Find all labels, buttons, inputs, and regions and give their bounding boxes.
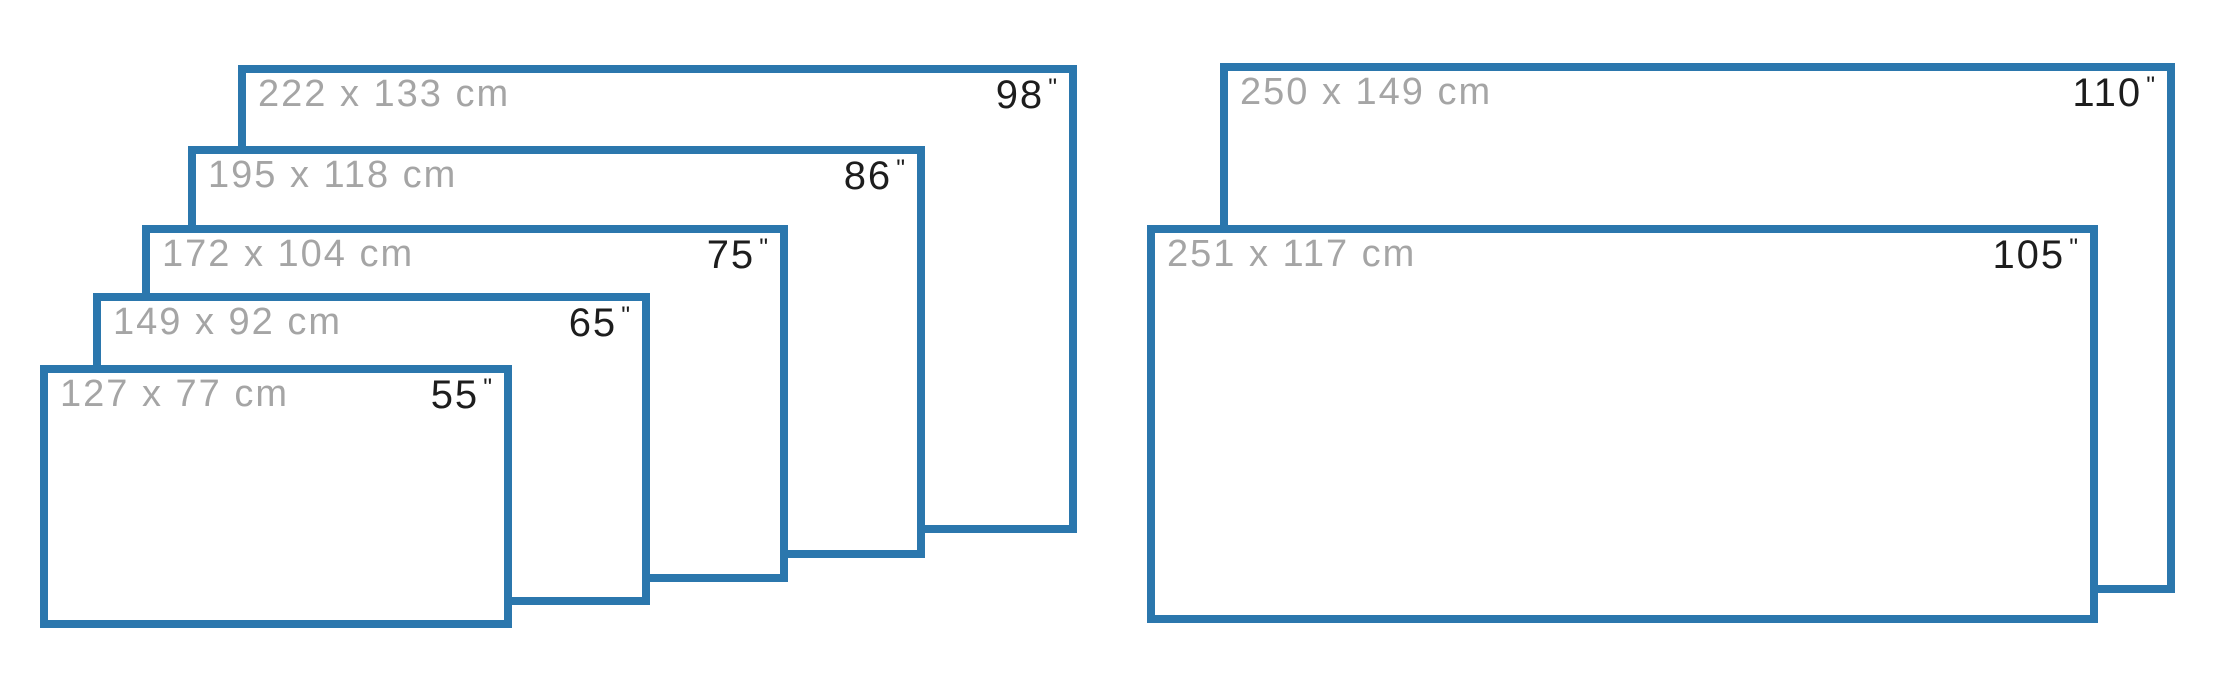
- inch-size-label: 105": [1992, 235, 2080, 275]
- inch-size-label: 98": [996, 75, 1059, 115]
- inch-size-label: 110": [2072, 73, 2157, 113]
- screen-rect-110in: 250 x 149 cm 110": [1220, 63, 2175, 593]
- inch-value: 98: [996, 73, 1045, 117]
- inch-value: 65: [569, 301, 618, 345]
- inch-value: 110: [2072, 71, 2142, 115]
- inch-size-label: 86": [844, 156, 907, 196]
- inch-size-label: 65": [569, 303, 632, 343]
- inch-size-label: 75": [707, 235, 770, 275]
- screen-rect-75in: 172 x 104 cm 75": [142, 225, 788, 582]
- inch-mark: ": [1048, 75, 1059, 102]
- cm-dimensions-label: 127 x 77 cm: [60, 375, 289, 413]
- cm-dimensions-label: 222 x 133 cm: [258, 75, 510, 113]
- inch-size-label: 55": [431, 375, 494, 415]
- cm-dimensions-label: 251 x 117 cm: [1167, 235, 1416, 273]
- inch-value: 75: [707, 233, 756, 277]
- screen-rect-86in: 195 x 118 cm 86": [188, 146, 925, 558]
- inch-value: 86: [844, 154, 893, 198]
- inch-mark: ": [2146, 73, 2157, 100]
- screen-rect-55in: 127 x 77 cm 55": [40, 365, 512, 628]
- inch-mark: ": [896, 156, 907, 183]
- cm-dimensions-label: 149 x 92 cm: [113, 303, 342, 341]
- screen-rect-98in: 222 x 133 cm 98": [238, 65, 1077, 533]
- screen-group-left: 222 x 133 cm 98" 195 x 118 cm 86" 172 x …: [0, 0, 2220, 694]
- inch-mark: ": [2069, 235, 2080, 262]
- inch-value: 55: [431, 373, 480, 417]
- cm-dimensions-label: 195 x 118 cm: [208, 156, 457, 194]
- screen-rect-105in: 251 x 117 cm 105": [1147, 225, 2098, 623]
- screen-rect-65in: 149 x 92 cm 65": [93, 293, 650, 605]
- cm-dimensions-label: 250 x 149 cm: [1240, 73, 1492, 111]
- screen-size-comparison-diagram: 222 x 133 cm 98" 195 x 118 cm 86" 172 x …: [0, 0, 2220, 694]
- inch-mark: ": [483, 375, 494, 402]
- screen-group-right: 250 x 149 cm 110" 251 x 117 cm 105": [0, 0, 2220, 694]
- inch-value: 105: [1992, 233, 2065, 277]
- cm-dimensions-label: 172 x 104 cm: [162, 235, 414, 273]
- inch-mark: ": [759, 235, 770, 262]
- inch-mark: ": [621, 303, 632, 330]
